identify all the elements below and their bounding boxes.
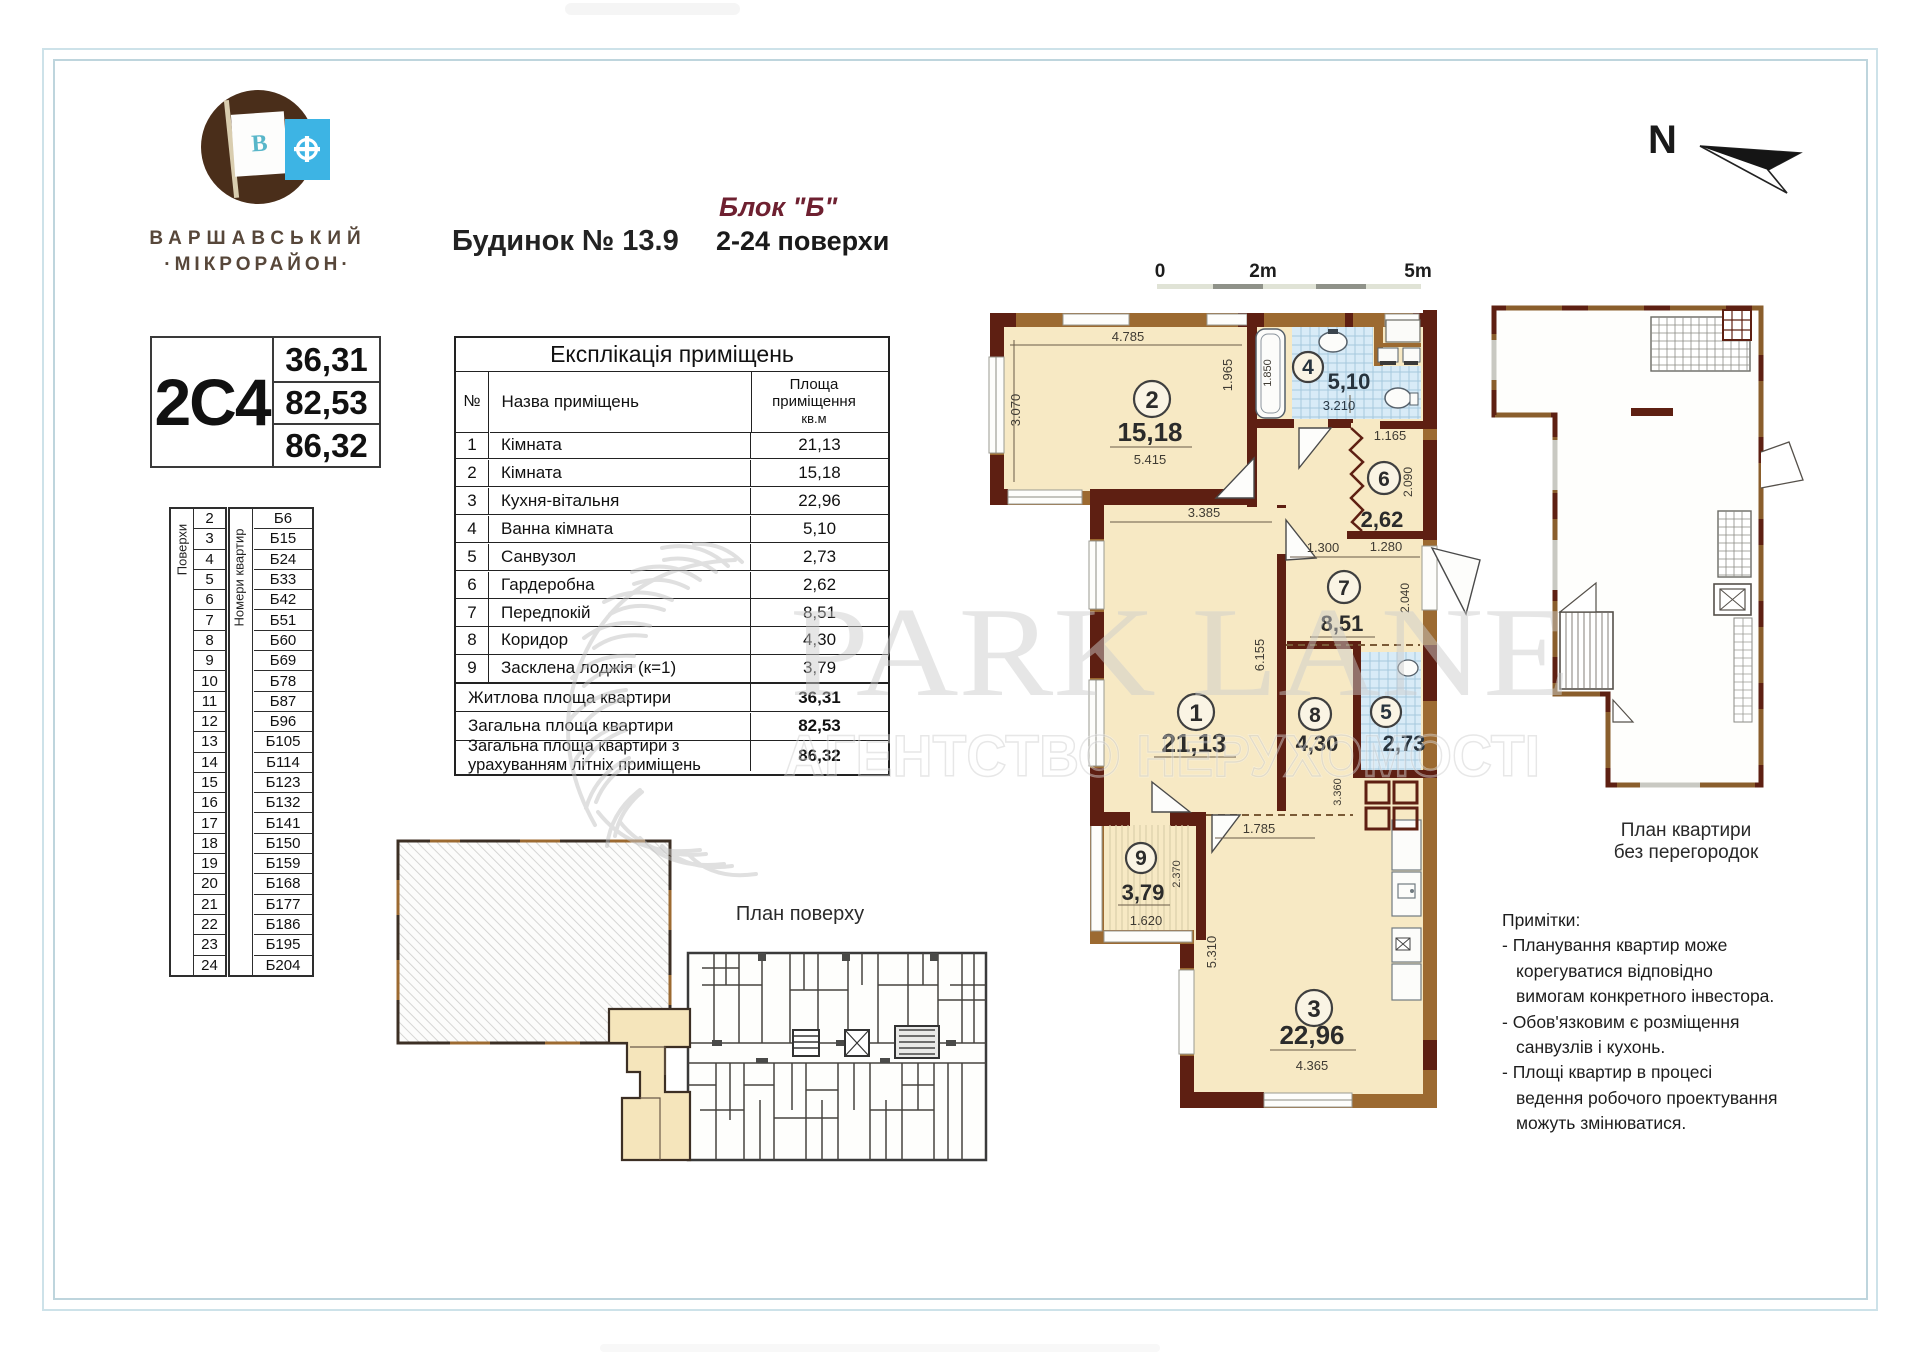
svg-text:0: 0 [1155, 261, 1166, 282]
svg-text:2.090: 2.090 [1401, 467, 1415, 497]
svg-text:1.280: 1.280 [1370, 539, 1403, 554]
svg-text:5,10: 5,10 [1328, 369, 1371, 394]
svg-text:3,79: 3,79 [1122, 880, 1165, 905]
svg-text:5.310: 5.310 [1204, 936, 1219, 969]
svg-text:2m: 2m [1249, 261, 1276, 282]
svg-text:5m: 5m [1404, 261, 1431, 282]
svg-text:PARK LANE: PARK LANE [790, 581, 1570, 723]
svg-text:6: 6 [1378, 468, 1390, 491]
svg-text:1.620: 1.620 [1130, 913, 1163, 928]
svg-text:5.415: 5.415 [1134, 452, 1167, 467]
svg-text:1.850: 1.850 [1262, 359, 1274, 387]
svg-text:3.385: 3.385 [1188, 505, 1221, 520]
svg-text:1.165: 1.165 [1374, 428, 1407, 443]
svg-text:2: 2 [1145, 387, 1158, 414]
svg-text:1.965: 1.965 [1220, 359, 1235, 392]
svg-text:15,18: 15,18 [1117, 417, 1182, 447]
svg-text:4.365: 4.365 [1296, 1058, 1329, 1073]
svg-text:3.070: 3.070 [1008, 394, 1023, 427]
svg-text:1.785: 1.785 [1243, 821, 1276, 836]
svg-text:3.210: 3.210 [1323, 398, 1356, 413]
svg-text:2.370: 2.370 [1171, 860, 1183, 888]
svg-text:N: N [1648, 118, 1677, 162]
svg-text:2,62: 2,62 [1361, 507, 1404, 532]
svg-text:АГЕНТСТВО НЕРУХОМОСТІ: АГЕНТСТВО НЕРУХОМОСТІ [784, 724, 1540, 789]
svg-text:1.300: 1.300 [1307, 540, 1340, 555]
svg-text:3: 3 [1307, 996, 1320, 1023]
svg-text:22,96: 22,96 [1279, 1020, 1344, 1050]
svg-text:4.785: 4.785 [1112, 329, 1145, 344]
svg-text:9: 9 [1135, 847, 1147, 870]
svg-text:4: 4 [1302, 356, 1314, 379]
